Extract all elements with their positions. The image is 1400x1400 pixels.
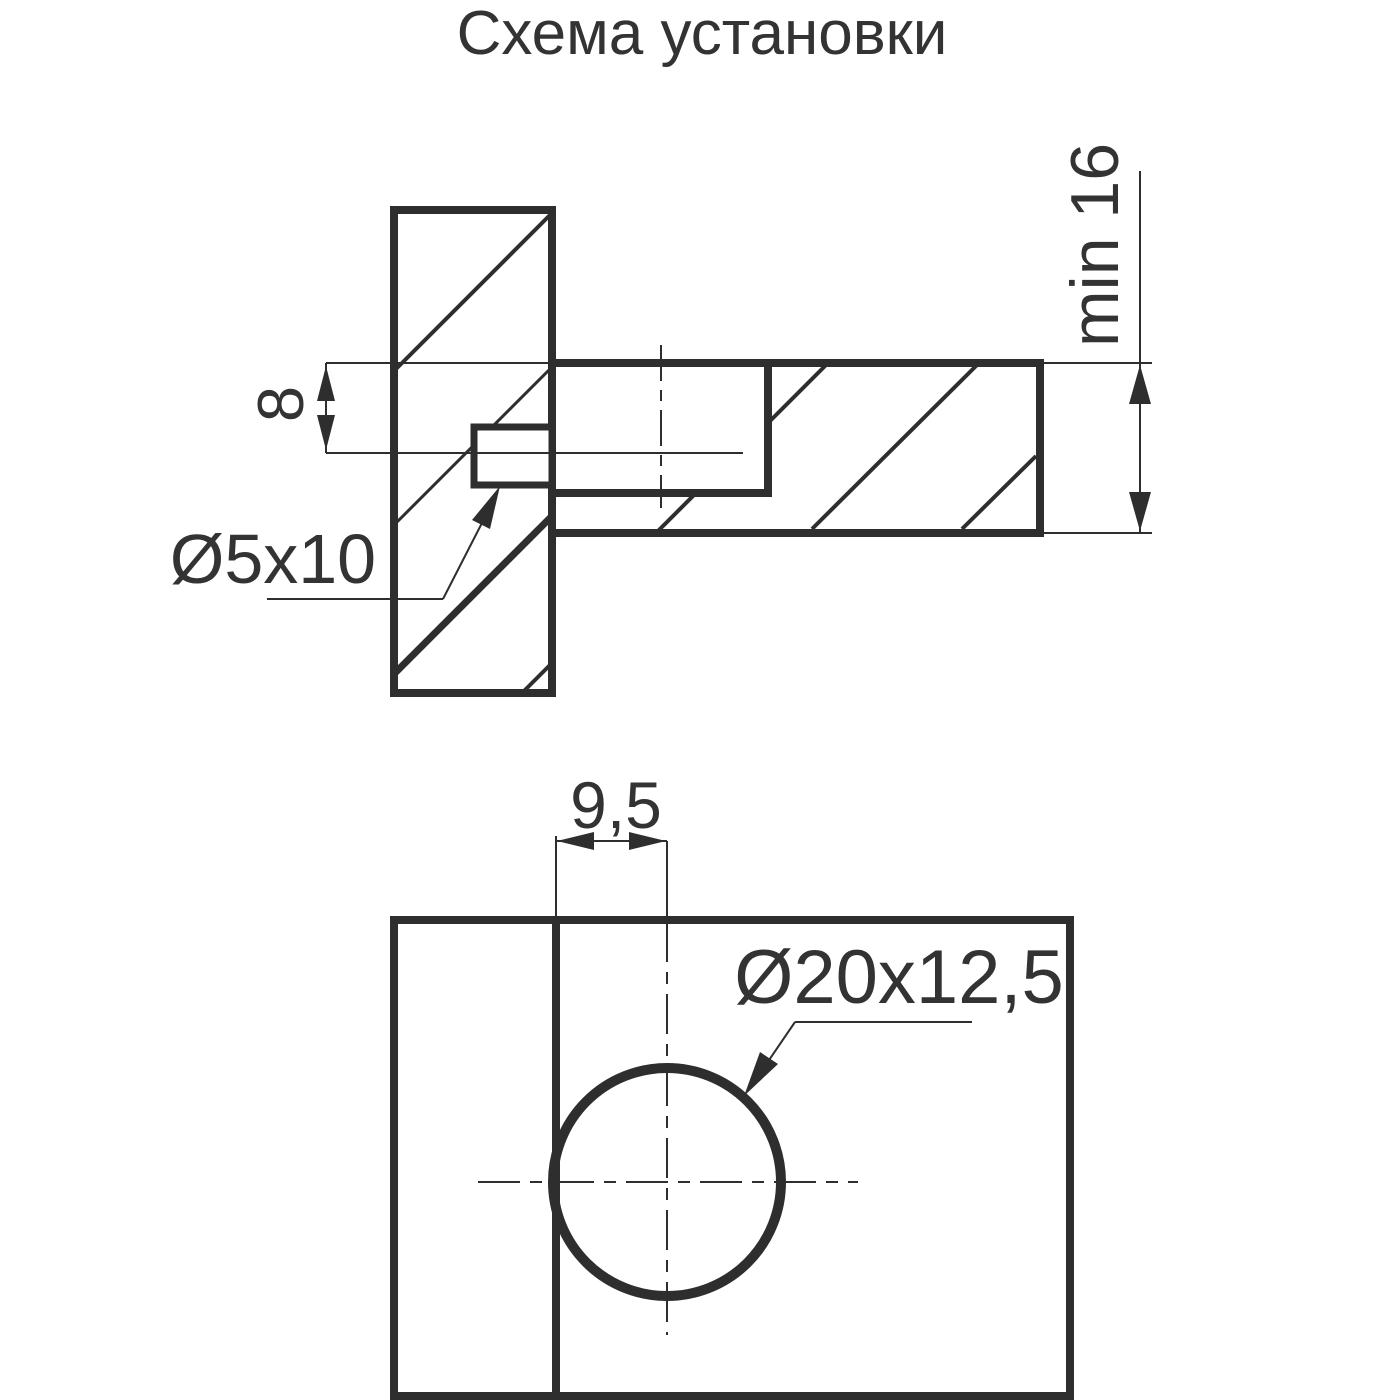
dim-8-label: 8 [244, 386, 317, 422]
dim-min16-arrow-down [1129, 492, 1151, 531]
diagram-title: Схема установки [457, 0, 948, 68]
side-section-view: 8 Ø5x10 min 16 [170, 143, 1152, 693]
hole-size-label: Ø20x12,5 [734, 935, 1064, 1020]
dim-min16-label: min 16 [1057, 143, 1133, 347]
screw-head [474, 427, 552, 485]
dim-95-label: 9,5 [570, 768, 662, 842]
dim-8-arrow-down [317, 415, 335, 450]
dim-min16-arrow-up [1129, 365, 1151, 404]
installation-diagram-page: Схема установки [0, 0, 1400, 1400]
front-view: 9,5 Ø20x12,5 [394, 768, 1070, 1396]
dim-8-arrow-up [317, 366, 335, 401]
installation-diagram: Схема установки [0, 0, 1400, 1400]
dowel-size-label: Ø5x10 [170, 520, 376, 598]
